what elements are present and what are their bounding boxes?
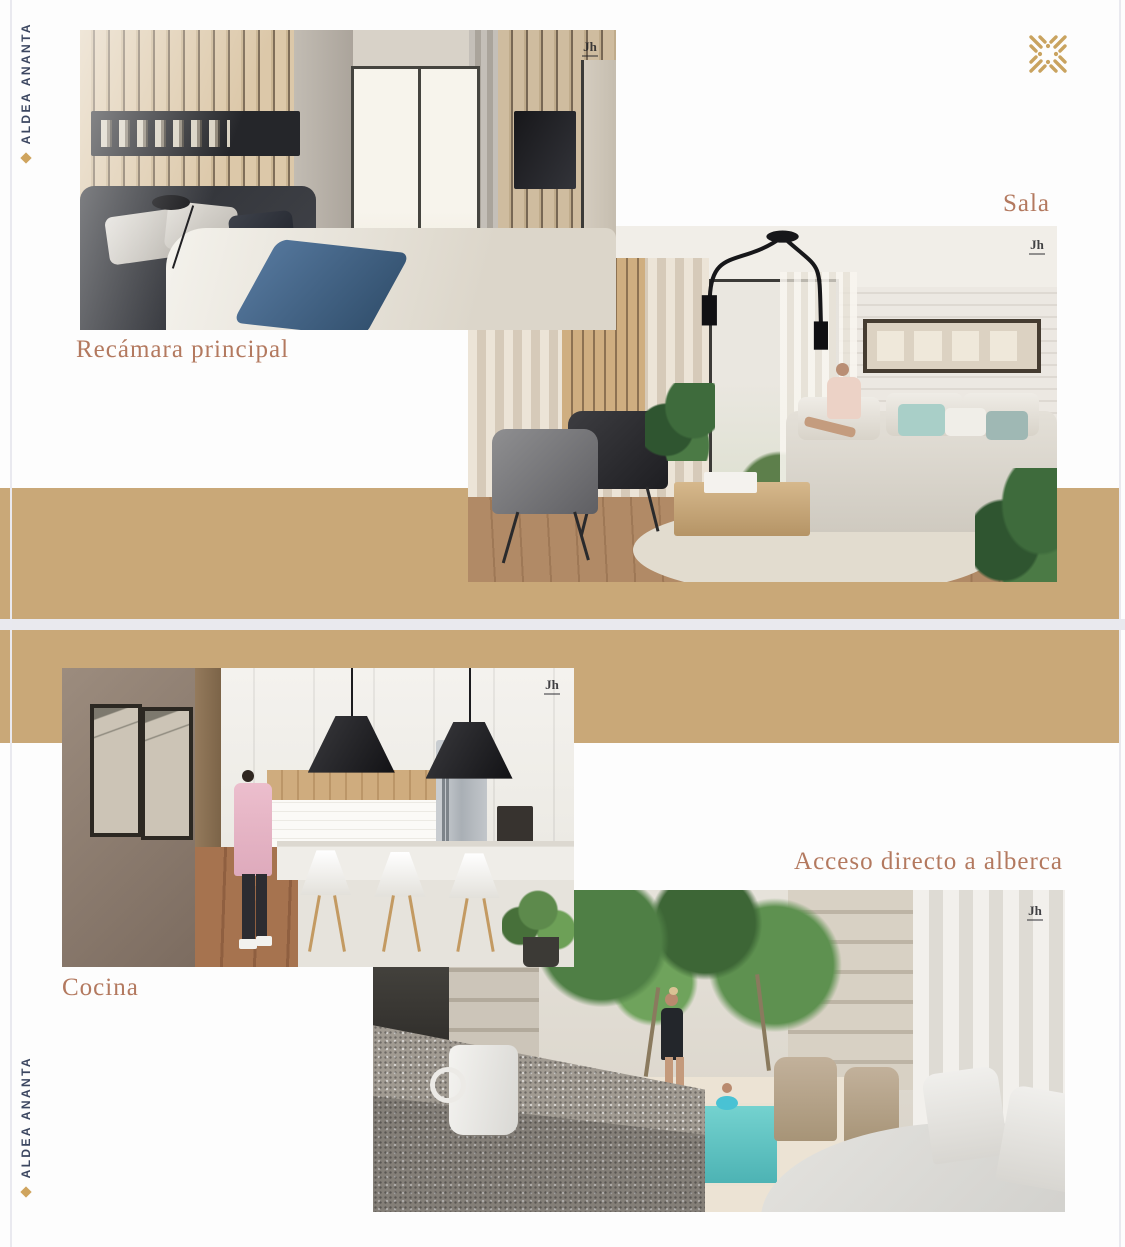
logo-subtext-line [544,693,560,695]
caption-alberca: Acceso directo a alberca [794,848,1063,876]
kitchen-coffee-maker [497,806,533,845]
jh-monogram: Jh [1028,904,1042,917]
pool-person [665,993,678,1006]
page-border-left [10,0,12,1247]
brand-vertical-label: ALDEA ANANTA [12,22,40,162]
developer-logo-watermark: Jh [544,678,560,695]
kitchen-wall-art [90,704,142,838]
sala-corner-plant [975,468,1057,582]
brand-name-text: ALDEA ANANTA [19,1056,33,1178]
jh-monogram: Jh [1030,238,1044,251]
kitchen-photo: Jh [62,668,574,967]
developer-logo-watermark: Jh [1029,238,1045,255]
gold-diamond-icon [20,153,31,164]
kitchen-wall-art [141,707,193,841]
page-gap [0,619,1125,630]
logo-subtext-line [582,55,598,57]
kitchen-backsplash [267,800,446,848]
brand-vertical-label: ALDEA ANANTA [12,1056,40,1196]
developer-logo-watermark: Jh [1027,904,1043,921]
kitchen-wood-cabinet [267,770,446,800]
pool-chair-white [921,1065,1009,1165]
kitchen-person [242,770,254,782]
bedroom-tv [514,111,576,189]
page-border-right [1119,0,1121,1247]
bedroom-photo: Jh [80,30,616,330]
gold-diamond-icon [20,1187,31,1198]
sala-teal-pillow [898,404,945,436]
caption-recamara: Recámara principal [76,336,289,364]
brand-pattern-icon [1026,32,1070,76]
slide-2: Jh [0,630,1125,1247]
pool-chair-tan [774,1057,836,1141]
caption-sala: Sala [1003,190,1050,218]
logo-subtext-line [1027,919,1043,921]
caption-cocina: Cocina [62,974,139,1002]
developer-logo-watermark: Jh [582,40,598,57]
sala-armchair-gray [492,429,598,514]
brochure-viewer: Jh [0,0,1125,1247]
slide-1: Jh [0,0,1125,619]
sala-plant [645,383,716,461]
logo-subtext-line [1029,253,1045,255]
jh-monogram: Jh [545,678,559,691]
sala-pendant-lamp [621,226,904,368]
jh-monogram: Jh [583,40,597,53]
brand-name-text: ALDEA ANANTA [19,22,33,144]
